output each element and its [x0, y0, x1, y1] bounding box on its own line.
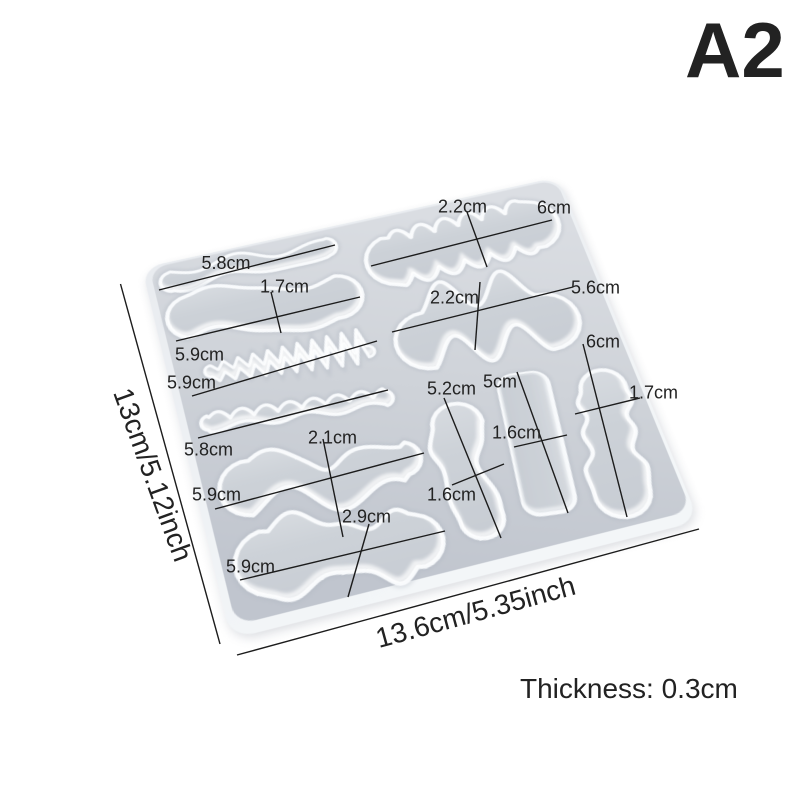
- svg-text:1.6cm: 1.6cm: [492, 423, 541, 443]
- svg-text:5.2cm: 5.2cm: [427, 379, 476, 399]
- svg-text:5.6cm: 5.6cm: [571, 278, 620, 298]
- svg-text:2.1cm: 2.1cm: [308, 428, 357, 448]
- svg-text:5.9cm: 5.9cm: [175, 345, 224, 365]
- svg-text:6cm: 6cm: [537, 198, 571, 218]
- svg-text:2.2cm: 2.2cm: [430, 288, 479, 308]
- svg-text:1.6cm: 1.6cm: [427, 485, 476, 505]
- svg-text:5.9cm: 5.9cm: [167, 373, 216, 393]
- svg-text:1.7cm: 1.7cm: [629, 383, 678, 403]
- svg-text:13.6cm/5.35inch: 13.6cm/5.35inch: [372, 570, 578, 654]
- svg-text:6cm: 6cm: [586, 332, 620, 352]
- svg-text:A2: A2: [685, 6, 785, 94]
- svg-text:5.8cm: 5.8cm: [202, 253, 251, 273]
- svg-text:2.9cm: 2.9cm: [342, 507, 391, 527]
- svg-text:5cm: 5cm: [483, 372, 517, 392]
- svg-text:Thickness: 0.3cm: Thickness: 0.3cm: [520, 673, 738, 704]
- svg-text:1.7cm: 1.7cm: [260, 277, 309, 297]
- svg-text:5.8cm: 5.8cm: [184, 440, 233, 460]
- svg-text:5.9cm: 5.9cm: [226, 557, 275, 577]
- svg-text:5.9cm: 5.9cm: [192, 485, 241, 505]
- svg-text:2.2cm: 2.2cm: [438, 197, 487, 217]
- svg-text:13cm/5.12inch: 13cm/5.12inch: [107, 384, 198, 566]
